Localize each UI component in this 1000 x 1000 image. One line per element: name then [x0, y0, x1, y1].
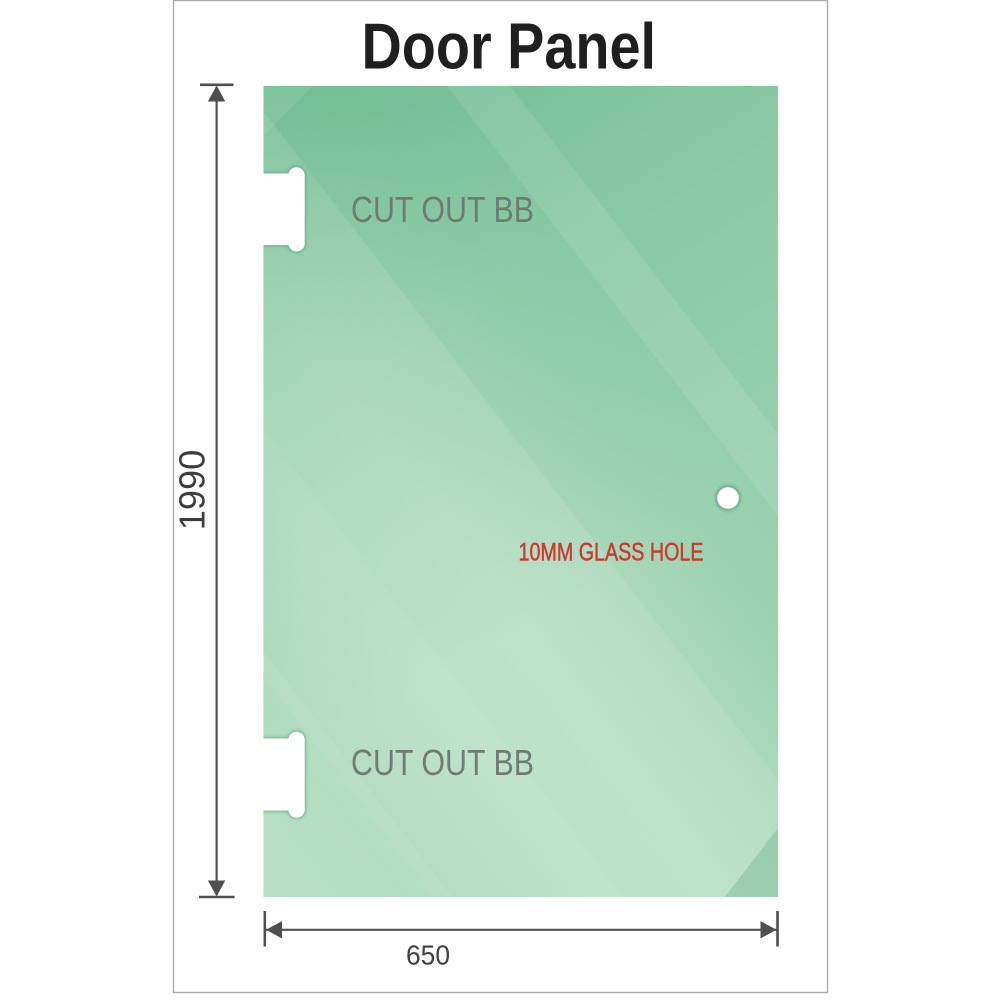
svg-text:1990: 1990 — [172, 450, 213, 531]
svg-text:CUT OUT BB: CUT OUT BB — [351, 742, 534, 783]
svg-text:CUT OUT BB: CUT OUT BB — [351, 189, 534, 230]
svg-text:Door Panel: Door Panel — [362, 10, 657, 83]
svg-text:10MM GLASS HOLE: 10MM GLASS HOLE — [519, 539, 704, 567]
svg-text:650: 650 — [406, 940, 450, 971]
